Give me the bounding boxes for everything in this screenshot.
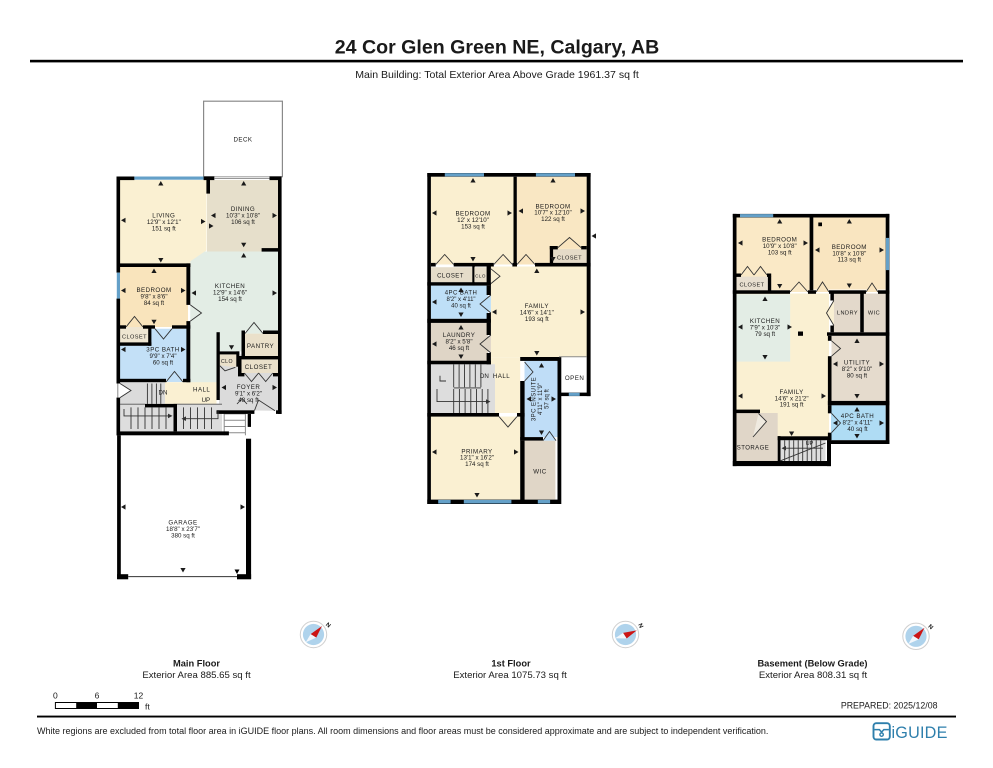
svg-text:DN: DN: [480, 373, 489, 380]
svg-text:Basement (Below Grade): Basement (Below Grade): [757, 659, 867, 669]
svg-text:40 sq ft: 40 sq ft: [847, 426, 868, 433]
svg-text:Main Building: Total Exterior: Main Building: Total Exterior Area Above…: [355, 69, 639, 81]
svg-text:6: 6: [95, 691, 100, 701]
svg-text:0: 0: [53, 691, 58, 701]
svg-text:CLOSET: CLOSET: [739, 283, 764, 289]
svg-text:WIC: WIC: [868, 310, 880, 316]
svg-text:46 sq ft: 46 sq ft: [449, 345, 470, 352]
svg-text:79 sq ft: 79 sq ft: [755, 331, 776, 338]
svg-text:151 sq ft: 151 sq ft: [152, 225, 176, 232]
svg-text:HALL: HALL: [493, 373, 510, 380]
svg-text:113 sq ft: 113 sq ft: [838, 257, 862, 264]
svg-text:CLOSET: CLOSET: [437, 274, 464, 280]
svg-text:57 sq ft: 57 sq ft: [545, 389, 551, 409]
svg-text:380 sq ft: 380 sq ft: [171, 532, 195, 539]
svg-text:8'2" x 4'11": 8'2" x 4'11": [446, 297, 475, 303]
svg-text:DECK: DECK: [234, 137, 253, 144]
svg-text:48 sq ft: 48 sq ft: [238, 397, 259, 404]
svg-text:60 sq ft: 60 sq ft: [153, 359, 174, 366]
svg-text:White regions are excluded fro: White regions are excluded from total fl…: [37, 726, 768, 736]
svg-text:iGUIDE: iGUIDE: [892, 724, 948, 742]
svg-text:122 sq ft: 122 sq ft: [541, 216, 565, 223]
svg-text:Exterior Area 1075.73 sq ft: Exterior Area 1075.73 sq ft: [453, 670, 567, 681]
svg-text:LNDRY: LNDRY: [837, 310, 858, 316]
svg-text:193 sq ft: 193 sq ft: [525, 316, 549, 323]
svg-text:174 sq ft: 174 sq ft: [465, 461, 489, 468]
svg-text:40 sq ft: 40 sq ft: [451, 303, 471, 309]
svg-text:CLO: CLO: [475, 273, 486, 278]
svg-text:CLO: CLO: [221, 359, 233, 365]
svg-text:4'11" x 11'9": 4'11" x 11'9": [538, 383, 544, 415]
svg-text:1st Floor: 1st Floor: [491, 659, 531, 669]
svg-text:UP: UP: [202, 397, 211, 404]
svg-text:Exterior Area 885.65 sq ft: Exterior Area 885.65 sq ft: [142, 670, 251, 681]
svg-text:153 sq ft: 153 sq ft: [461, 223, 485, 230]
svg-text:DN: DN: [159, 390, 168, 397]
svg-text:OPEN: OPEN: [565, 375, 584, 382]
svg-text:UP: UP: [806, 441, 814, 447]
svg-text:STORAGE: STORAGE: [737, 445, 769, 451]
svg-text:CLOSET: CLOSET: [245, 364, 272, 371]
svg-text:Main Floor: Main Floor: [173, 659, 220, 669]
svg-text:84 sq ft: 84 sq ft: [144, 300, 165, 307]
svg-text:CLOSET: CLOSET: [122, 334, 147, 340]
svg-text:106 sq ft: 106 sq ft: [231, 219, 255, 226]
svg-text:WIC: WIC: [533, 468, 546, 475]
svg-text:80 sq ft: 80 sq ft: [847, 372, 868, 379]
svg-text:191 sq ft: 191 sq ft: [780, 402, 804, 409]
svg-text:PREPARED: 2025/12/08: PREPARED: 2025/12/08: [841, 701, 938, 711]
svg-text:Exterior Area 808.31 sq ft: Exterior Area 808.31 sq ft: [759, 670, 868, 681]
svg-text:ft: ft: [145, 702, 150, 712]
svg-text:12: 12: [134, 691, 144, 701]
svg-text:PANTRY: PANTRY: [247, 343, 274, 350]
svg-text:103 sq ft: 103 sq ft: [768, 250, 792, 257]
svg-text:24 Cor Glen Green NE, Calgary,: 24 Cor Glen Green NE, Calgary, AB: [335, 37, 659, 59]
svg-text:3PC ENSUITE: 3PC ENSUITE: [532, 377, 538, 421]
svg-text:154 sq ft: 154 sq ft: [218, 296, 242, 303]
svg-text:CLOSET: CLOSET: [557, 255, 582, 261]
svg-text:HALL: HALL: [193, 386, 210, 393]
